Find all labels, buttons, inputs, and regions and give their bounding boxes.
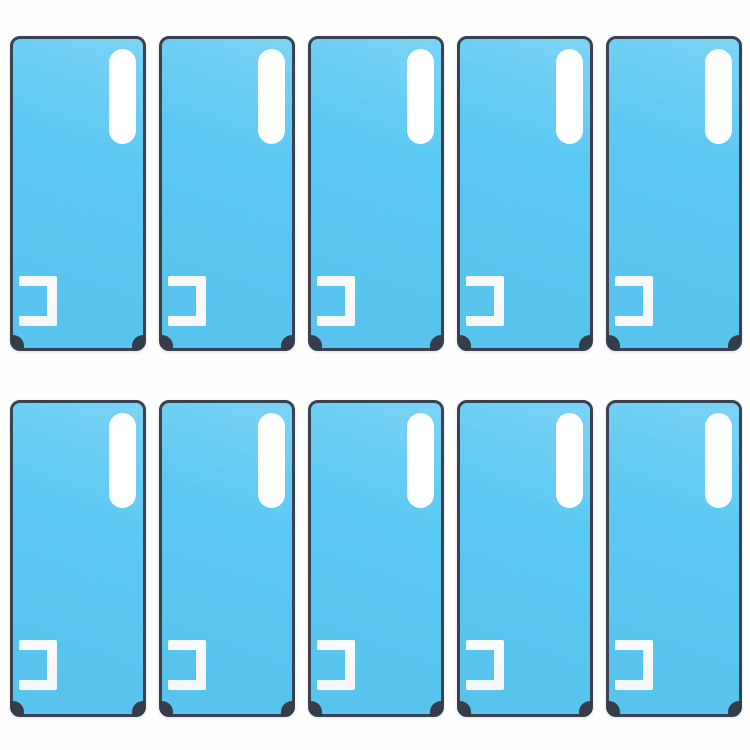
bracket-cutout: [168, 276, 206, 326]
bottom-right-corner-tab: [430, 701, 443, 716]
bottom-right-corner-tab: [579, 335, 592, 350]
camera-pill-cutout: [556, 413, 583, 508]
product-photo: [0, 0, 750, 750]
bracket-cutout: [615, 276, 653, 326]
bottom-right-corner-tab: [579, 701, 592, 716]
bottom-right-corner-tab: [728, 701, 741, 716]
bracket-cutout: [615, 640, 653, 690]
bottom-left-corner-tab: [458, 701, 471, 716]
bracket-cutout: [317, 276, 355, 326]
bottom-left-corner-tab: [607, 335, 620, 350]
adhesive-sticker: [308, 400, 444, 717]
camera-pill-cutout: [556, 49, 583, 144]
bottom-left-corner-tab: [11, 701, 24, 716]
bracket-cutout: [19, 640, 57, 690]
camera-pill-cutout: [109, 49, 136, 144]
adhesive-sticker: [10, 36, 146, 351]
sticker-row: [10, 400, 742, 717]
bracket-cutout: [466, 276, 504, 326]
bottom-left-corner-tab: [160, 701, 173, 716]
adhesive-sticker: [606, 400, 742, 717]
bottom-right-corner-tab: [430, 335, 443, 350]
bottom-left-corner-tab: [160, 335, 173, 350]
bottom-left-corner-tab: [309, 335, 322, 350]
bottom-right-corner-tab: [281, 335, 294, 350]
adhesive-sticker: [10, 400, 146, 717]
camera-pill-cutout: [258, 49, 285, 144]
camera-pill-cutout: [705, 413, 732, 508]
bottom-right-corner-tab: [132, 335, 145, 350]
camera-pill-cutout: [258, 413, 285, 508]
camera-pill-cutout: [407, 413, 434, 508]
adhesive-sticker: [606, 36, 742, 351]
bottom-left-corner-tab: [458, 335, 471, 350]
bracket-cutout: [168, 640, 206, 690]
camera-pill-cutout: [407, 49, 434, 144]
bracket-cutout: [317, 640, 355, 690]
bracket-cutout: [466, 640, 504, 690]
camera-pill-cutout: [705, 49, 732, 144]
adhesive-sticker: [159, 36, 295, 351]
bottom-right-corner-tab: [281, 701, 294, 716]
adhesive-sticker: [308, 36, 444, 351]
bottom-left-corner-tab: [607, 701, 620, 716]
sticker-row: [10, 36, 742, 351]
sticker-grid: [0, 0, 750, 750]
adhesive-sticker: [159, 400, 295, 717]
bottom-left-corner-tab: [309, 701, 322, 716]
bracket-cutout: [19, 276, 57, 326]
camera-pill-cutout: [109, 413, 136, 508]
adhesive-sticker: [457, 400, 593, 717]
bottom-right-corner-tab: [728, 335, 741, 350]
adhesive-sticker: [457, 36, 593, 351]
bottom-right-corner-tab: [132, 701, 145, 716]
bottom-left-corner-tab: [11, 335, 24, 350]
